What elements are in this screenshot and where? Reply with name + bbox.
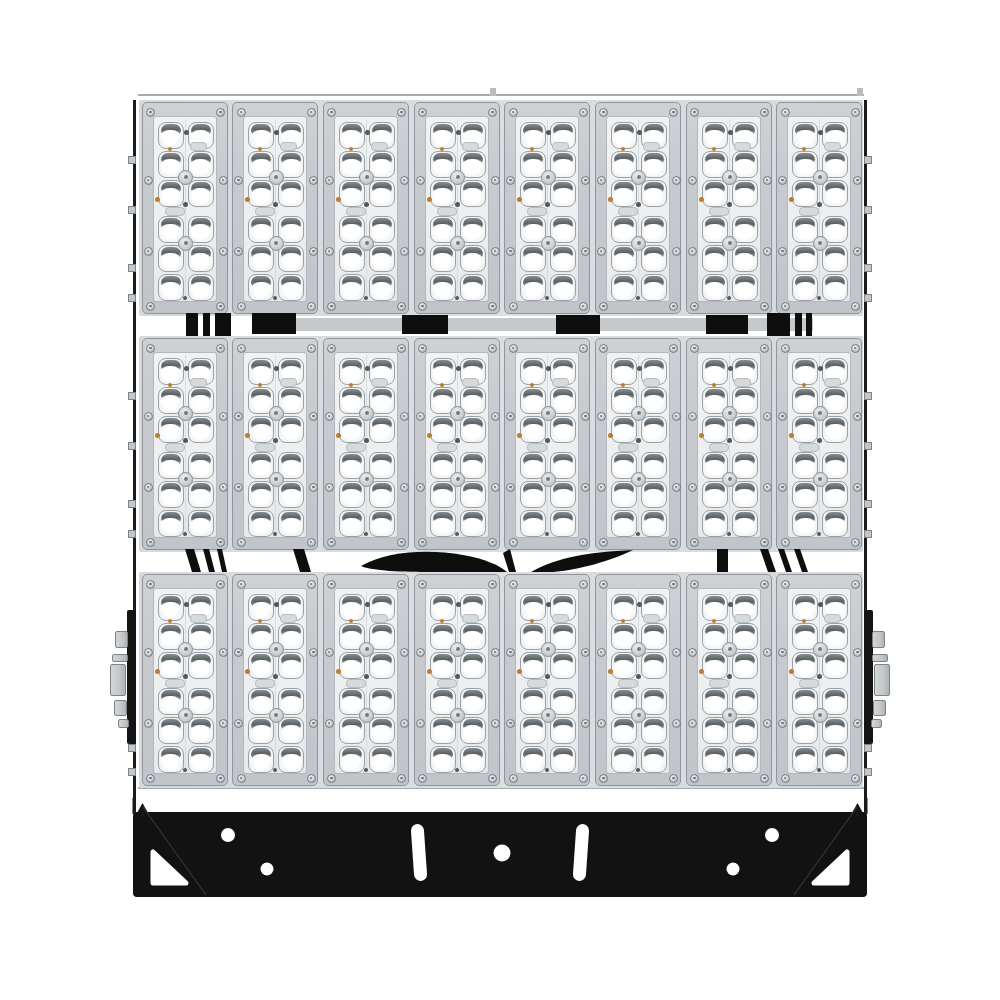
pcb-plate bbox=[371, 614, 388, 623]
led-lens bbox=[792, 180, 818, 207]
pcb-dot bbox=[364, 674, 369, 679]
led-lens bbox=[732, 717, 758, 744]
screw-head bbox=[778, 247, 787, 256]
screw-head bbox=[327, 774, 336, 783]
rail-tab bbox=[128, 530, 136, 538]
screw-head bbox=[491, 176, 500, 185]
screw-head bbox=[219, 247, 228, 256]
pcb-plate bbox=[799, 443, 819, 452]
led-lens bbox=[369, 746, 395, 773]
pcb-plate bbox=[165, 679, 185, 688]
led-lens bbox=[732, 510, 758, 537]
pcb-dot bbox=[184, 130, 189, 135]
led-lens bbox=[339, 122, 365, 149]
top-hook-tab bbox=[490, 88, 496, 96]
led-module bbox=[504, 338, 590, 550]
led-lens bbox=[278, 652, 304, 679]
rail-tab bbox=[864, 206, 872, 214]
led-lens bbox=[278, 717, 304, 744]
led-lens bbox=[248, 274, 274, 301]
led-lens bbox=[732, 274, 758, 301]
cable-loop bbox=[361, 552, 507, 572]
screw-boss bbox=[269, 406, 284, 421]
led-module bbox=[686, 338, 772, 550]
screw-boss bbox=[359, 472, 374, 487]
screw-boss bbox=[450, 236, 465, 251]
led-module bbox=[323, 102, 409, 314]
screw-head bbox=[309, 176, 318, 185]
pcb-dot bbox=[456, 602, 461, 607]
led-lens bbox=[188, 274, 214, 301]
screw-head bbox=[416, 648, 425, 657]
led-lens bbox=[822, 652, 848, 679]
bracket-hole bbox=[221, 828, 235, 842]
wire-terminal bbox=[621, 147, 625, 151]
mount-bolt bbox=[114, 700, 127, 716]
screw-head bbox=[597, 483, 606, 492]
screw-boss bbox=[541, 406, 556, 421]
screw-head bbox=[219, 648, 228, 657]
screw-boss bbox=[269, 472, 284, 487]
screw-head bbox=[491, 719, 500, 728]
lens-panel bbox=[787, 588, 851, 774]
bracket-hole bbox=[261, 863, 274, 876]
led-lens bbox=[460, 510, 486, 537]
wire-terminal bbox=[349, 383, 353, 387]
screw-head bbox=[416, 719, 425, 728]
screw-head bbox=[397, 344, 406, 353]
screw-head bbox=[146, 344, 155, 353]
led-lens bbox=[792, 358, 818, 385]
screw-boss bbox=[269, 170, 284, 185]
screw-head bbox=[325, 483, 334, 492]
screw-head bbox=[418, 302, 427, 311]
rail-tab bbox=[864, 264, 872, 272]
screw-head bbox=[219, 483, 228, 492]
wire-terminal bbox=[699, 669, 704, 674]
pcb-plate bbox=[734, 378, 751, 387]
screw-head bbox=[216, 108, 225, 117]
screw-head bbox=[688, 176, 697, 185]
screw-head bbox=[853, 483, 862, 492]
cable bbox=[503, 549, 516, 572]
screw-head bbox=[397, 302, 406, 311]
led-lens bbox=[460, 416, 486, 443]
led-lens bbox=[158, 122, 184, 149]
led-module bbox=[686, 574, 772, 786]
screw-head bbox=[146, 538, 155, 547]
lens-panel bbox=[425, 116, 489, 302]
led-lens bbox=[732, 180, 758, 207]
screw-head bbox=[307, 538, 316, 547]
screw-head bbox=[144, 412, 153, 421]
screw-head bbox=[763, 247, 772, 256]
cable bbox=[203, 313, 210, 336]
led-lens bbox=[822, 245, 848, 272]
screw-head bbox=[581, 247, 590, 256]
screw-head bbox=[416, 176, 425, 185]
led-lens bbox=[430, 180, 456, 207]
led-lens bbox=[248, 416, 274, 443]
led-lens bbox=[248, 652, 274, 679]
led-lens bbox=[430, 358, 456, 385]
cable bbox=[717, 549, 728, 572]
led-lens bbox=[641, 481, 667, 508]
led-lens bbox=[702, 180, 728, 207]
rail-tab bbox=[864, 442, 872, 450]
screw-head bbox=[669, 774, 678, 783]
screw-boss bbox=[450, 708, 465, 723]
lens-panel bbox=[425, 352, 489, 538]
pcb-plate bbox=[255, 207, 275, 216]
screw-head bbox=[851, 580, 860, 589]
wire-terminal bbox=[168, 383, 172, 387]
screw-head bbox=[763, 648, 772, 657]
junction-box bbox=[252, 313, 296, 334]
screw-head bbox=[599, 302, 608, 311]
screw-head bbox=[234, 176, 243, 185]
cable bbox=[806, 313, 812, 336]
screw-head bbox=[760, 774, 769, 783]
screw-head bbox=[309, 412, 318, 421]
pcb-dot bbox=[636, 768, 640, 772]
wire-terminal bbox=[427, 669, 432, 674]
screw-head bbox=[400, 719, 409, 728]
pcb-dot bbox=[455, 202, 460, 207]
wire-terminal bbox=[621, 383, 625, 387]
pcb-dot bbox=[637, 602, 642, 607]
screw-boss bbox=[359, 236, 374, 251]
screw-head bbox=[400, 483, 409, 492]
screw-head bbox=[506, 719, 515, 728]
screw-head bbox=[688, 719, 697, 728]
led-lens bbox=[460, 481, 486, 508]
screw-head bbox=[509, 302, 518, 311]
screw-head bbox=[599, 580, 608, 589]
screw-head bbox=[690, 108, 699, 117]
led-lens bbox=[158, 746, 184, 773]
screw-head bbox=[778, 412, 787, 421]
led-lens bbox=[158, 358, 184, 385]
pcb-plate bbox=[552, 614, 569, 623]
screw-boss bbox=[813, 642, 828, 657]
led-lens bbox=[641, 510, 667, 537]
screw-head bbox=[491, 247, 500, 256]
top-frame-edge bbox=[138, 94, 864, 96]
screw-head bbox=[400, 247, 409, 256]
screw-head bbox=[491, 648, 500, 657]
pcb-dot bbox=[364, 202, 369, 207]
pcb-plate bbox=[371, 378, 388, 387]
led-lens bbox=[188, 746, 214, 773]
screw-head bbox=[672, 483, 681, 492]
screw-head bbox=[579, 774, 588, 783]
mount-bolt bbox=[872, 631, 885, 648]
pcb-plate bbox=[643, 614, 660, 623]
bracket-hole bbox=[765, 828, 779, 842]
led-lens bbox=[158, 594, 184, 621]
pcb-dot bbox=[455, 674, 460, 679]
lens-panel bbox=[243, 588, 307, 774]
rail-tab bbox=[864, 768, 872, 776]
cable-group bbox=[185, 549, 808, 572]
screw-head bbox=[599, 538, 608, 547]
pcb-plate bbox=[190, 614, 207, 623]
led-lens bbox=[188, 652, 214, 679]
led-lens bbox=[248, 358, 274, 385]
lens-panel bbox=[515, 116, 579, 302]
led-lens bbox=[611, 652, 637, 679]
led-lens bbox=[550, 510, 576, 537]
lens-panel bbox=[153, 352, 217, 538]
mount-tab bbox=[118, 719, 129, 728]
pcb-dot bbox=[636, 674, 641, 679]
wire-terminal bbox=[349, 619, 353, 623]
module-row bbox=[139, 572, 863, 788]
led-lens bbox=[460, 245, 486, 272]
screw-boss bbox=[631, 170, 646, 185]
screw-head bbox=[307, 580, 316, 589]
pcb-dot bbox=[636, 532, 640, 536]
mount-bolt bbox=[873, 700, 886, 716]
screw-head bbox=[325, 412, 334, 421]
led-lens bbox=[702, 274, 728, 301]
screw-boss bbox=[722, 642, 737, 657]
cable bbox=[778, 549, 792, 572]
led-lens bbox=[369, 481, 395, 508]
led-lens bbox=[188, 481, 214, 508]
screw-head bbox=[851, 344, 860, 353]
rail-tab bbox=[864, 500, 872, 508]
screw-head bbox=[581, 412, 590, 421]
screw-head bbox=[325, 648, 334, 657]
led-lens bbox=[641, 746, 667, 773]
screw-head bbox=[672, 719, 681, 728]
pcb-plate bbox=[190, 142, 207, 151]
led-lens bbox=[520, 594, 546, 621]
screw-boss bbox=[269, 642, 284, 657]
screw-head bbox=[581, 648, 590, 657]
led-lens bbox=[248, 746, 274, 773]
pcb-plate bbox=[462, 378, 479, 387]
led-floodlight-product-image bbox=[0, 0, 1000, 1000]
screw-head bbox=[400, 648, 409, 657]
pcb-plate bbox=[734, 142, 751, 151]
led-lens bbox=[520, 245, 546, 272]
lens-panel bbox=[334, 352, 398, 538]
pcb-dot bbox=[455, 296, 459, 300]
led-lens bbox=[339, 416, 365, 443]
wire-terminal bbox=[699, 433, 704, 438]
screw-boss bbox=[631, 236, 646, 251]
led-lens bbox=[369, 652, 395, 679]
rail-tab bbox=[128, 156, 136, 164]
screw-head bbox=[597, 412, 606, 421]
wire-terminal bbox=[699, 197, 704, 202]
pcb-plate bbox=[824, 614, 841, 623]
screw-head bbox=[325, 719, 334, 728]
screw-head bbox=[853, 247, 862, 256]
led-lens bbox=[248, 717, 274, 744]
pcb-plate bbox=[280, 614, 297, 623]
rail-tab bbox=[128, 264, 136, 272]
pcb-plate bbox=[527, 443, 547, 452]
led-lens bbox=[550, 746, 576, 773]
led-lens bbox=[822, 180, 848, 207]
led-lens bbox=[702, 652, 728, 679]
led-lens bbox=[460, 746, 486, 773]
screw-boss bbox=[631, 406, 646, 421]
screw-boss bbox=[541, 236, 556, 251]
screw-boss bbox=[178, 170, 193, 185]
led-lens bbox=[550, 245, 576, 272]
led-lens bbox=[550, 180, 576, 207]
led-module bbox=[504, 102, 590, 314]
screw-head bbox=[219, 719, 228, 728]
led-lens bbox=[792, 481, 818, 508]
screw-head bbox=[597, 719, 606, 728]
led-lens bbox=[792, 717, 818, 744]
screw-head bbox=[216, 580, 225, 589]
screw-head bbox=[760, 538, 769, 547]
screw-head bbox=[690, 538, 699, 547]
led-lens bbox=[792, 594, 818, 621]
mount-bolt bbox=[115, 631, 128, 648]
screw-head bbox=[327, 580, 336, 589]
rail-tab bbox=[864, 744, 872, 752]
pcb-dot bbox=[364, 768, 368, 772]
pcb-plate bbox=[346, 443, 366, 452]
lens-panel bbox=[787, 352, 851, 538]
led-lens bbox=[822, 746, 848, 773]
screw-head bbox=[307, 108, 316, 117]
screw-head bbox=[216, 774, 225, 783]
led-module bbox=[232, 102, 318, 314]
wiring-band-upper bbox=[133, 313, 867, 337]
screw-head bbox=[234, 719, 243, 728]
led-lens bbox=[550, 652, 576, 679]
screw-head bbox=[672, 176, 681, 185]
screw-head bbox=[416, 412, 425, 421]
pcb-plate bbox=[437, 207, 457, 216]
cable-loop bbox=[531, 550, 633, 572]
led-lens bbox=[611, 416, 637, 443]
screw-head bbox=[307, 302, 316, 311]
pcb-plate bbox=[371, 142, 388, 151]
led-lens bbox=[702, 594, 728, 621]
lens-panel bbox=[153, 116, 217, 302]
wire-terminal bbox=[168, 147, 172, 151]
screw-head bbox=[325, 176, 334, 185]
screw-head bbox=[488, 774, 497, 783]
pcb-dot bbox=[183, 532, 187, 536]
led-lens bbox=[430, 510, 456, 537]
screw-head bbox=[416, 483, 425, 492]
led-lens bbox=[158, 652, 184, 679]
screw-head bbox=[763, 483, 772, 492]
screw-head bbox=[672, 412, 681, 421]
pcb-plate bbox=[190, 378, 207, 387]
led-module bbox=[686, 102, 772, 314]
screw-head bbox=[491, 483, 500, 492]
screw-head bbox=[781, 774, 790, 783]
led-module bbox=[776, 102, 862, 314]
led-lens bbox=[460, 274, 486, 301]
module-row bbox=[139, 100, 863, 316]
led-lens bbox=[430, 416, 456, 443]
wire-terminal bbox=[440, 383, 444, 387]
screw-boss bbox=[813, 406, 828, 421]
screw-head bbox=[509, 538, 518, 547]
led-lens bbox=[460, 652, 486, 679]
screw-head bbox=[144, 648, 153, 657]
screw-head bbox=[146, 108, 155, 117]
lens-panel bbox=[697, 588, 761, 774]
screw-head bbox=[146, 302, 155, 311]
cable bbox=[794, 549, 808, 572]
rail-tab bbox=[864, 392, 872, 400]
led-lens bbox=[702, 122, 728, 149]
led-module bbox=[414, 102, 500, 314]
screw-head bbox=[669, 344, 678, 353]
screw-head bbox=[488, 580, 497, 589]
led-lens bbox=[641, 274, 667, 301]
led-lens bbox=[611, 180, 637, 207]
pcb-plate bbox=[255, 443, 275, 452]
rail-tab bbox=[128, 206, 136, 214]
screw-head bbox=[216, 344, 225, 353]
led-lens bbox=[248, 510, 274, 537]
pcb-dot bbox=[365, 130, 370, 135]
led-lens bbox=[188, 416, 214, 443]
screw-head bbox=[506, 412, 515, 421]
pcb-plate bbox=[346, 207, 366, 216]
cable bbox=[186, 313, 198, 336]
wire-terminal bbox=[440, 619, 444, 623]
led-lens bbox=[278, 416, 304, 443]
wire-terminal bbox=[712, 383, 716, 387]
led-lens bbox=[278, 245, 304, 272]
led-lens bbox=[520, 416, 546, 443]
screw-head bbox=[216, 538, 225, 547]
screw-boss bbox=[541, 642, 556, 657]
screw-head bbox=[760, 580, 769, 589]
screw-boss bbox=[813, 236, 828, 251]
screw-head bbox=[599, 344, 608, 353]
led-lens bbox=[792, 122, 818, 149]
screw-boss bbox=[359, 642, 374, 657]
pcb-plate bbox=[437, 443, 457, 452]
screw-head bbox=[778, 648, 787, 657]
screw-head bbox=[400, 176, 409, 185]
pcb-dot bbox=[637, 130, 642, 135]
screw-head bbox=[144, 483, 153, 492]
cable bbox=[185, 549, 201, 572]
led-lens bbox=[641, 245, 667, 272]
pcb-dot bbox=[728, 366, 733, 371]
led-lens bbox=[611, 746, 637, 773]
led-lens bbox=[702, 416, 728, 443]
screw-head bbox=[397, 538, 406, 547]
lens-panel bbox=[425, 588, 489, 774]
mounting-bracket bbox=[125, 798, 875, 906]
screw-boss bbox=[178, 708, 193, 723]
screw-head bbox=[325, 247, 334, 256]
lens-panel bbox=[515, 588, 579, 774]
led-lens bbox=[430, 746, 456, 773]
screw-head bbox=[599, 108, 608, 117]
led-lens bbox=[641, 652, 667, 679]
